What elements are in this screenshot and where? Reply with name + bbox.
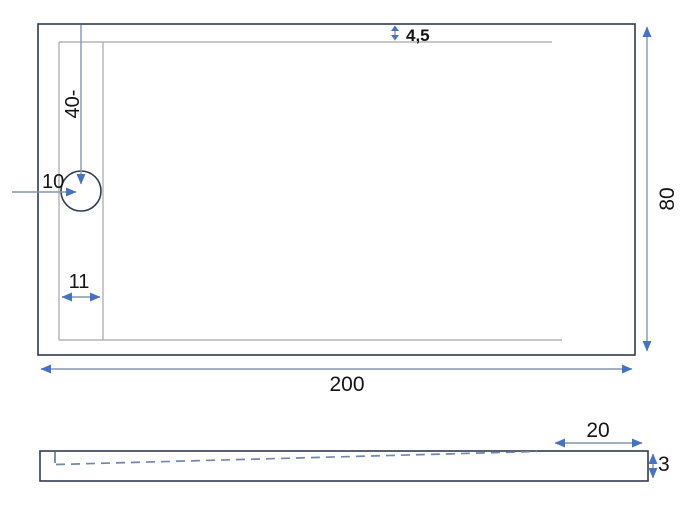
dim-depth-label: 80 (656, 187, 679, 210)
dim-flat-label: 20 (586, 419, 609, 442)
dim-drain-from-top: 40- (62, 25, 84, 184)
dim-depth: 80 (647, 27, 679, 351)
tray-outline (38, 24, 635, 355)
side-view: 20 3 (40, 419, 670, 481)
dim-flat-zone: 20 (555, 419, 642, 443)
dim-channel-label: 11 (69, 271, 90, 293)
dim-rim-arrow-down (391, 35, 399, 41)
dim-thickness: 3 (653, 453, 670, 478)
dim-drain-from-left: 10 (12, 171, 76, 193)
dim-rim-arrow-up (391, 26, 399, 32)
drawing-canvas: 4,5 40- 10 11 80 (0, 0, 700, 509)
dim-rim-label: 4,5 (406, 26, 430, 45)
dim-drain-top-label: 40- (62, 90, 84, 119)
dim-width: 200 (41, 369, 632, 396)
dim-width-label: 200 (329, 373, 364, 396)
technical-drawing: 4,5 40- 10 11 80 (0, 0, 700, 509)
dim-thickness-label: 3 (658, 453, 670, 476)
dim-drain-left-label: 10 (42, 171, 64, 193)
side-profile-outline (40, 451, 648, 481)
dim-channel: 11 (62, 271, 100, 297)
top-view: 4,5 40- 10 11 80 (12, 24, 679, 396)
slope-dashed-line (56, 452, 537, 465)
